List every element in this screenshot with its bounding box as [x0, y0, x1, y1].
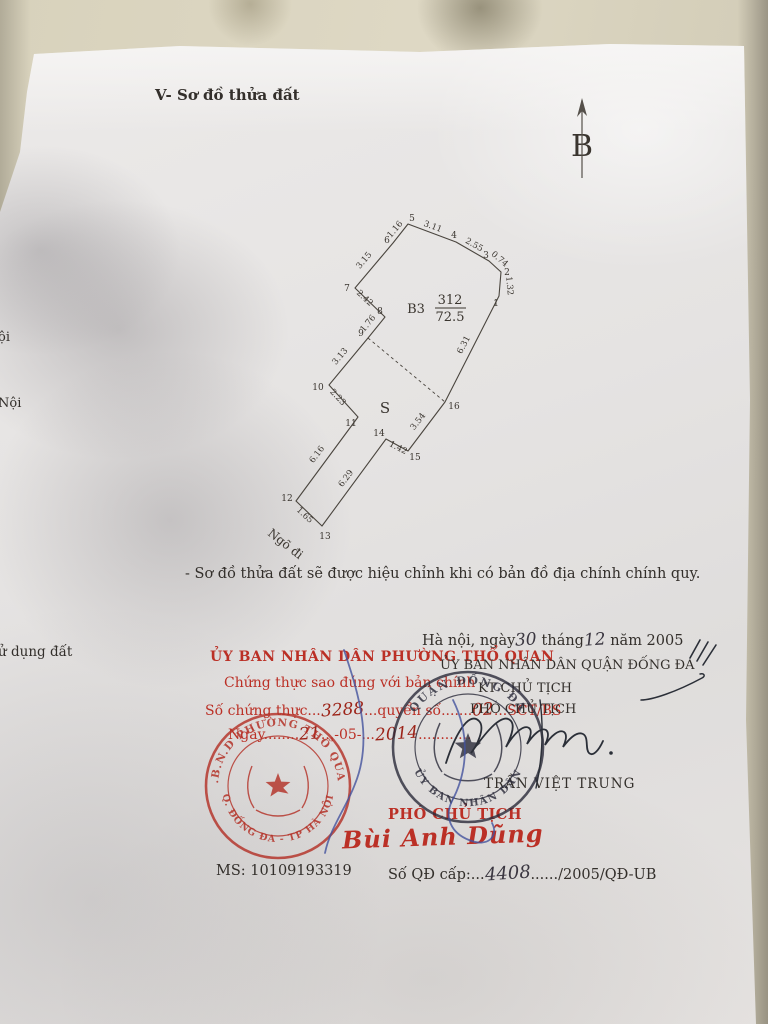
plot-code: B3 — [407, 302, 425, 317]
margin-fragment: Nội — [0, 396, 21, 411]
handwritten-day: 30 — [515, 629, 538, 650]
vertex-label: 10 — [312, 383, 324, 393]
edge-measure: 3.54 — [409, 411, 429, 432]
vertex-label: 14 — [373, 429, 385, 439]
plot-area: 72.5 — [436, 310, 465, 325]
parcel-boundary — [296, 224, 501, 526]
handwritten-month: 12 — [583, 629, 606, 650]
ms-number: MS: 10109193319 — [216, 863, 352, 879]
section-label: S — [380, 399, 390, 417]
edge-measure: 0.74 — [489, 250, 510, 270]
alley-label: Ngõ đi — [265, 526, 306, 562]
parcel-divider-dashed — [368, 338, 445, 402]
date-line: Hà nội, ngày30 tháng12 năm 2005 — [422, 630, 683, 650]
vertex-label: 11 — [345, 419, 356, 429]
north-arrow: B — [553, 88, 613, 183]
decision-suffix: ....../2005/QĐ-UB — [530, 867, 656, 883]
handwritten-cert-day: 21 — [299, 723, 322, 744]
edge-measure: 1.65 — [294, 505, 315, 525]
edge-measure: 1.76 — [359, 313, 379, 334]
parcel-diagram: 1 2 3 4 5 6 7 8 9 10 11 12 13 14 15 16 1… — [250, 200, 550, 570]
edge-measure: 2.55 — [463, 236, 484, 254]
vertex-label: 1 — [493, 299, 499, 309]
margin-fragment: ội — [0, 330, 10, 345]
edge-measure: 2.23 — [327, 387, 347, 408]
year-label: năm 2005 — [610, 633, 683, 649]
date-prefix: Hà nội, ngày — [422, 633, 515, 649]
diagram-caption: - Sơ đồ thửa đất sẽ được hiệu chỉnh khi … — [185, 566, 700, 582]
vertex-label: 8 — [377, 307, 383, 317]
edge-measure: 3.13 — [331, 346, 351, 367]
decision-prefix: Số QĐ cấp:... — [388, 867, 485, 883]
month-label: tháng — [542, 633, 584, 649]
vertex-label: 5 — [409, 214, 415, 224]
cert-date-suffix: ............ — [418, 727, 471, 743]
certification-statement: Chứng thực sao đúng với bản chính — [224, 675, 475, 691]
page-title: V- Sơ đồ thửa đất — [155, 86, 300, 104]
kt-chairman-line: KT CHỦ TỊCH — [478, 681, 572, 696]
edge-measure: 6.29 — [337, 468, 356, 489]
edge-measure: 1.16 — [386, 219, 406, 240]
handwritten-cert-number: 3288 — [320, 699, 365, 722]
vertex-label: 16 — [448, 402, 460, 412]
committee-line: ỦY BAN NHÂN DÂN QUẬN ĐỐNG ĐA — [440, 658, 694, 673]
vertex-label: 15 — [409, 453, 421, 463]
signer-name: TRẦN VIỆT TRUNG — [484, 776, 635, 792]
plot-number: 312 — [438, 293, 463, 308]
edge-measure: 1.32 — [503, 276, 515, 296]
cert-date-mid: ...-05-... — [321, 727, 375, 743]
certification-date-line: Ngày........21...-05-...2014............ — [228, 724, 472, 744]
edge-measure: 1.42 — [387, 439, 408, 457]
handwritten-cert-year: 2014 — [374, 723, 419, 746]
margin-fragment: ử dụng đất — [0, 644, 72, 660]
vertex-label: 7 — [344, 284, 350, 294]
cert-date-prefix: Ngày........ — [228, 727, 299, 743]
cert-number-prefix: Số chứng thực... — [205, 703, 321, 719]
vertex-label: 13 — [319, 532, 331, 542]
deputy-chairman-line: PHÓ CHỦ TỊCH — [470, 702, 576, 717]
vertex-label: 12 — [281, 494, 292, 504]
vertex-label: 3 — [483, 251, 489, 261]
photographed-document: V- Sơ đồ thửa đất ội Nội ử dụng đất B 1 … — [0, 0, 768, 1024]
cert-book-label: ...quyển số....... — [364, 703, 472, 719]
vertex-label: 4 — [451, 231, 457, 241]
handwritten-decision-number: 4408 — [484, 861, 531, 885]
edge-measure: 2.42 — [354, 288, 375, 308]
decision-number-line: Số QĐ cấp:...4408....../2005/QĐ-UB — [388, 863, 656, 884]
